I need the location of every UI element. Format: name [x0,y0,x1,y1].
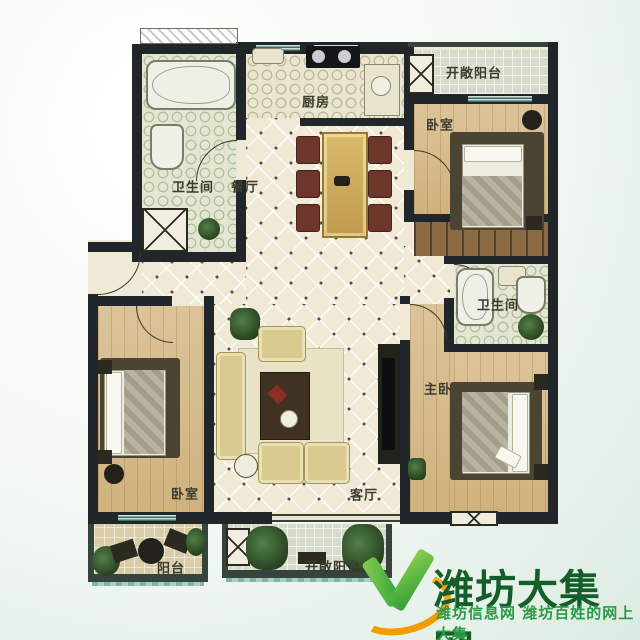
side-table [234,454,258,478]
room-label-living-room: 客厅 [350,485,378,504]
stove-burner [312,50,325,63]
wall [400,340,410,522]
bed-pillow [106,372,122,454]
window [450,511,498,526]
wall [444,256,556,264]
floorplan-canvas: 卫生间 厨房 餐厅 开敞阳台 卧室 卫生间 主卧 客厅 卧室 阳台 开敞阳台 潍… [0,0,640,640]
wall [88,294,98,522]
dining-chair [296,170,320,198]
wall [88,242,142,252]
window [468,96,532,102]
armchair [304,442,350,484]
wall [214,512,272,524]
dining-chair [296,204,320,232]
stool [104,464,124,484]
balcony-railing [88,524,94,578]
bed-pillow [464,146,522,162]
wall [204,296,214,522]
nightstand [526,216,542,230]
room-label-bedroom-top-right: 卧室 [426,115,454,134]
armchair [258,326,306,362]
plant [198,218,220,240]
dining-chair [368,204,392,232]
tv [382,358,395,450]
plant [518,314,544,340]
plant [186,528,206,556]
room-label-kitchen: 厨房 [302,92,330,111]
ac-ledge [140,28,238,44]
watermark-subtitle: 潍坊信息网 潍坊百姓的网上大集 [436,602,640,640]
plant [408,458,426,480]
wall [88,296,172,306]
armchair [258,442,304,484]
balcony-glass [92,582,204,586]
stove-burner [338,50,351,63]
balcony-railing [408,42,548,47]
plant [246,526,288,570]
nightstand [98,450,112,464]
wall [236,44,246,140]
window [118,515,176,521]
shower [142,208,188,252]
room-label-master-bedroom: 主卧 [424,379,452,398]
wall [132,252,246,262]
bed-blanket [462,176,522,226]
kitchen-sink [252,48,284,64]
wall [400,296,410,304]
wall [548,104,558,522]
dining-chair [296,136,320,164]
sliding-door [272,514,400,522]
balcony-window [408,54,434,94]
wall [300,118,404,126]
nightstand [534,374,548,390]
coffee-table [260,372,310,440]
room-label-balcony-bottom-left: 阳台 [157,558,185,577]
wall [444,344,558,352]
nightstand [534,464,548,480]
sofa [216,352,246,460]
room-label-open-balcony-bottom: 开敞阳台 [305,557,361,576]
table-decor [280,410,298,428]
room-label-bedroom-bottom-left: 卧室 [171,484,199,503]
table-centerpiece [334,176,350,186]
wall [404,104,414,150]
balcony-glass [226,578,388,582]
bedside-lamp [522,110,542,130]
toilet [516,276,546,314]
balcony-railing [386,524,392,574]
plant [230,308,260,340]
counter-sink [371,76,391,96]
bathtub [146,60,236,110]
dining-chair [368,170,392,198]
room-label-open-balcony-top: 开敞阳台 [446,63,502,82]
nightstand [98,360,112,374]
toilet [150,124,184,170]
room-label-bathroom-right: 卫生间 [477,295,519,314]
wall [132,44,236,54]
room-label-dining: 餐厅 [231,177,259,196]
room-label-bathroom-top-left: 卫生间 [172,177,214,196]
dining-chair [368,136,392,164]
bed-blanket [124,370,164,454]
wall [132,44,142,250]
